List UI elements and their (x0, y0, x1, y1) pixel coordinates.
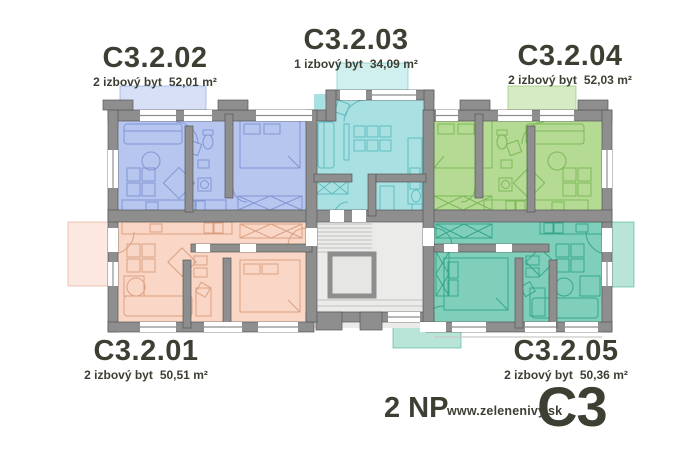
building-label: C3 (537, 374, 607, 439)
balcony-c3-2-01 (68, 222, 112, 286)
apartment-title: C3.2.04 (490, 42, 650, 71)
floor-label: 2 NP (384, 392, 448, 425)
elevator-shaft (330, 254, 374, 296)
apartment-region-c3-2-02[interactable] (112, 114, 314, 216)
apartment-subtitle: 2 izbový byt50,51 m² (66, 368, 226, 382)
apartment-subtitle: 2 izbový byt52,01 m² (75, 75, 235, 89)
apartment-label-c3-2-02[interactable]: C3.2.02 2 izbový byt52,01 m² (75, 44, 235, 89)
apartment-subtitle: 1 izbový byt34,09 m² (276, 57, 436, 71)
apartment-title: C3.2.05 (486, 337, 646, 366)
apartment-label-c3-2-03[interactable]: C3.2.03 1 izbový byt34,09 m² (276, 26, 436, 71)
balcony-c3-2-04 (508, 86, 576, 112)
apartment-title: C3.2.02 (75, 44, 235, 73)
apartment-title: C3.2.03 (276, 26, 436, 55)
apartment-label-c3-2-01[interactable]: C3.2.01 2 izbový byt50,51 m² (66, 337, 226, 382)
floorplan-page: C3.2.02 2 izbový byt52,01 m² C3.2.03 1 i… (0, 0, 700, 457)
apartment-title: C3.2.01 (66, 337, 226, 366)
apartment-subtitle: 2 izbový byt52,03 m² (490, 73, 650, 87)
apartment-label-c3-2-04[interactable]: C3.2.04 2 izbový byt52,03 m² (490, 42, 650, 87)
